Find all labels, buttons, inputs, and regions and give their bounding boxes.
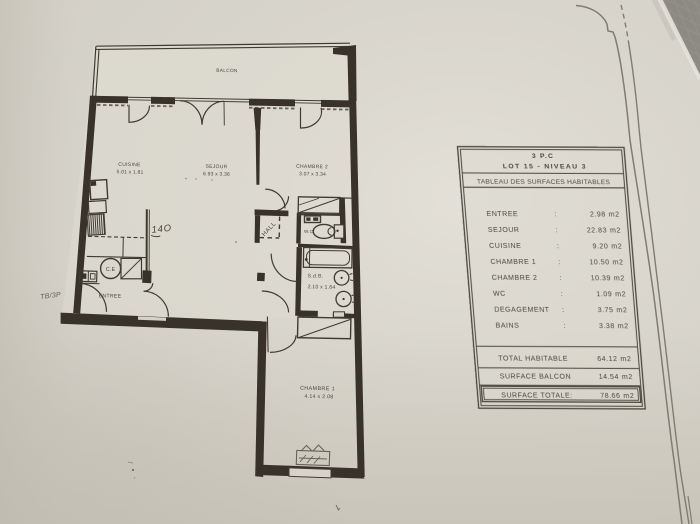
svg-text:64.12: 64.12: [597, 356, 618, 363]
svg-text:4.14 x 2.08: 4.14 x 2.08: [304, 394, 333, 401]
svg-text:m2: m2: [623, 393, 634, 400]
svg-text:3 P.C: 3 P.C: [532, 153, 555, 160]
svg-text:78.66: 78.66: [600, 393, 621, 400]
svg-text:m2: m2: [615, 292, 626, 299]
svg-text:BALCON: BALCON: [216, 68, 237, 73]
svg-text:m2: m2: [610, 228, 621, 235]
svg-text:1.09: 1.09: [596, 291, 612, 298]
svg-text:m2: m2: [609, 212, 620, 219]
svg-text:10.50: 10.50: [589, 260, 610, 267]
svg-text:CHAMBRE 1: CHAMBRE 1: [490, 259, 536, 266]
svg-text:3.75: 3.75: [598, 307, 614, 314]
svg-text:3.07 x 3.34: 3.07 x 3.34: [299, 171, 326, 178]
svg-text:C.E: C.E: [106, 267, 116, 273]
svg-text:m2: m2: [614, 276, 625, 283]
svg-text:S.d.B.: S.d.B.: [307, 273, 323, 279]
svg-text:9.20: 9.20: [592, 244, 608, 251]
svg-text:5.01 x 1.81: 5.01 x 1.81: [116, 169, 143, 176]
svg-text:TOTAL HABITABLE: TOTAL HABITABLE: [498, 356, 568, 363]
svg-text:m2: m2: [622, 374, 633, 381]
svg-text:6.93 x 3.36: 6.93 x 3.36: [203, 171, 230, 178]
svg-text:14O: 14O: [151, 223, 172, 236]
svg-text:3.38: 3.38: [599, 323, 615, 330]
svg-text:2.10 x 1.64: 2.10 x 1.64: [308, 284, 336, 291]
svg-text:2.98: 2.98: [590, 212, 606, 219]
svg-text:CHAMBRE 2: CHAMBRE 2: [492, 275, 538, 282]
svg-text:10.39: 10.39: [591, 275, 612, 282]
svg-text:ENTREE: ENTREE: [486, 211, 518, 218]
svg-text:W.C: W.C: [304, 229, 313, 234]
svg-text:SURFACE BALCON: SURFACE BALCON: [500, 373, 572, 380]
svg-text:BAINS: BAINS: [495, 323, 519, 330]
svg-text:LOT 15 - NIVEAU 3: LOT 15 - NIVEAU 3: [503, 163, 588, 170]
svg-text:CHAMBRE 2: CHAMBRE 2: [296, 164, 328, 171]
svg-text:WC: WC: [493, 291, 506, 298]
svg-text:22.83: 22.83: [587, 228, 608, 235]
svg-text:CHAMBRE 1: CHAMBRE 1: [300, 386, 335, 393]
svg-text:m2: m2: [616, 307, 627, 314]
svg-text:CUISINE: CUISINE: [118, 162, 141, 168]
svg-text:SEJOUR: SEJOUR: [205, 164, 227, 170]
svg-text:m2: m2: [620, 356, 631, 363]
svg-text:DEGAGEMENT: DEGAGEMENT: [494, 307, 550, 314]
svg-text:SEJOUR: SEJOUR: [488, 227, 520, 234]
svg-text:ENTREE: ENTREE: [99, 293, 122, 299]
svg-text:SURFACE TOTALE:: SURFACE TOTALE:: [501, 392, 573, 399]
svg-text:CUISINE: CUISINE: [489, 243, 522, 250]
svg-text:m2: m2: [618, 323, 629, 330]
svg-text:m2: m2: [611, 244, 622, 251]
svg-text:14.54: 14.54: [598, 374, 619, 381]
svg-text:TABLEAU DES SURFACES HABITABLE: TABLEAU DES SURFACES HABITABLES: [477, 178, 611, 186]
svg-text:m2: m2: [612, 260, 623, 267]
